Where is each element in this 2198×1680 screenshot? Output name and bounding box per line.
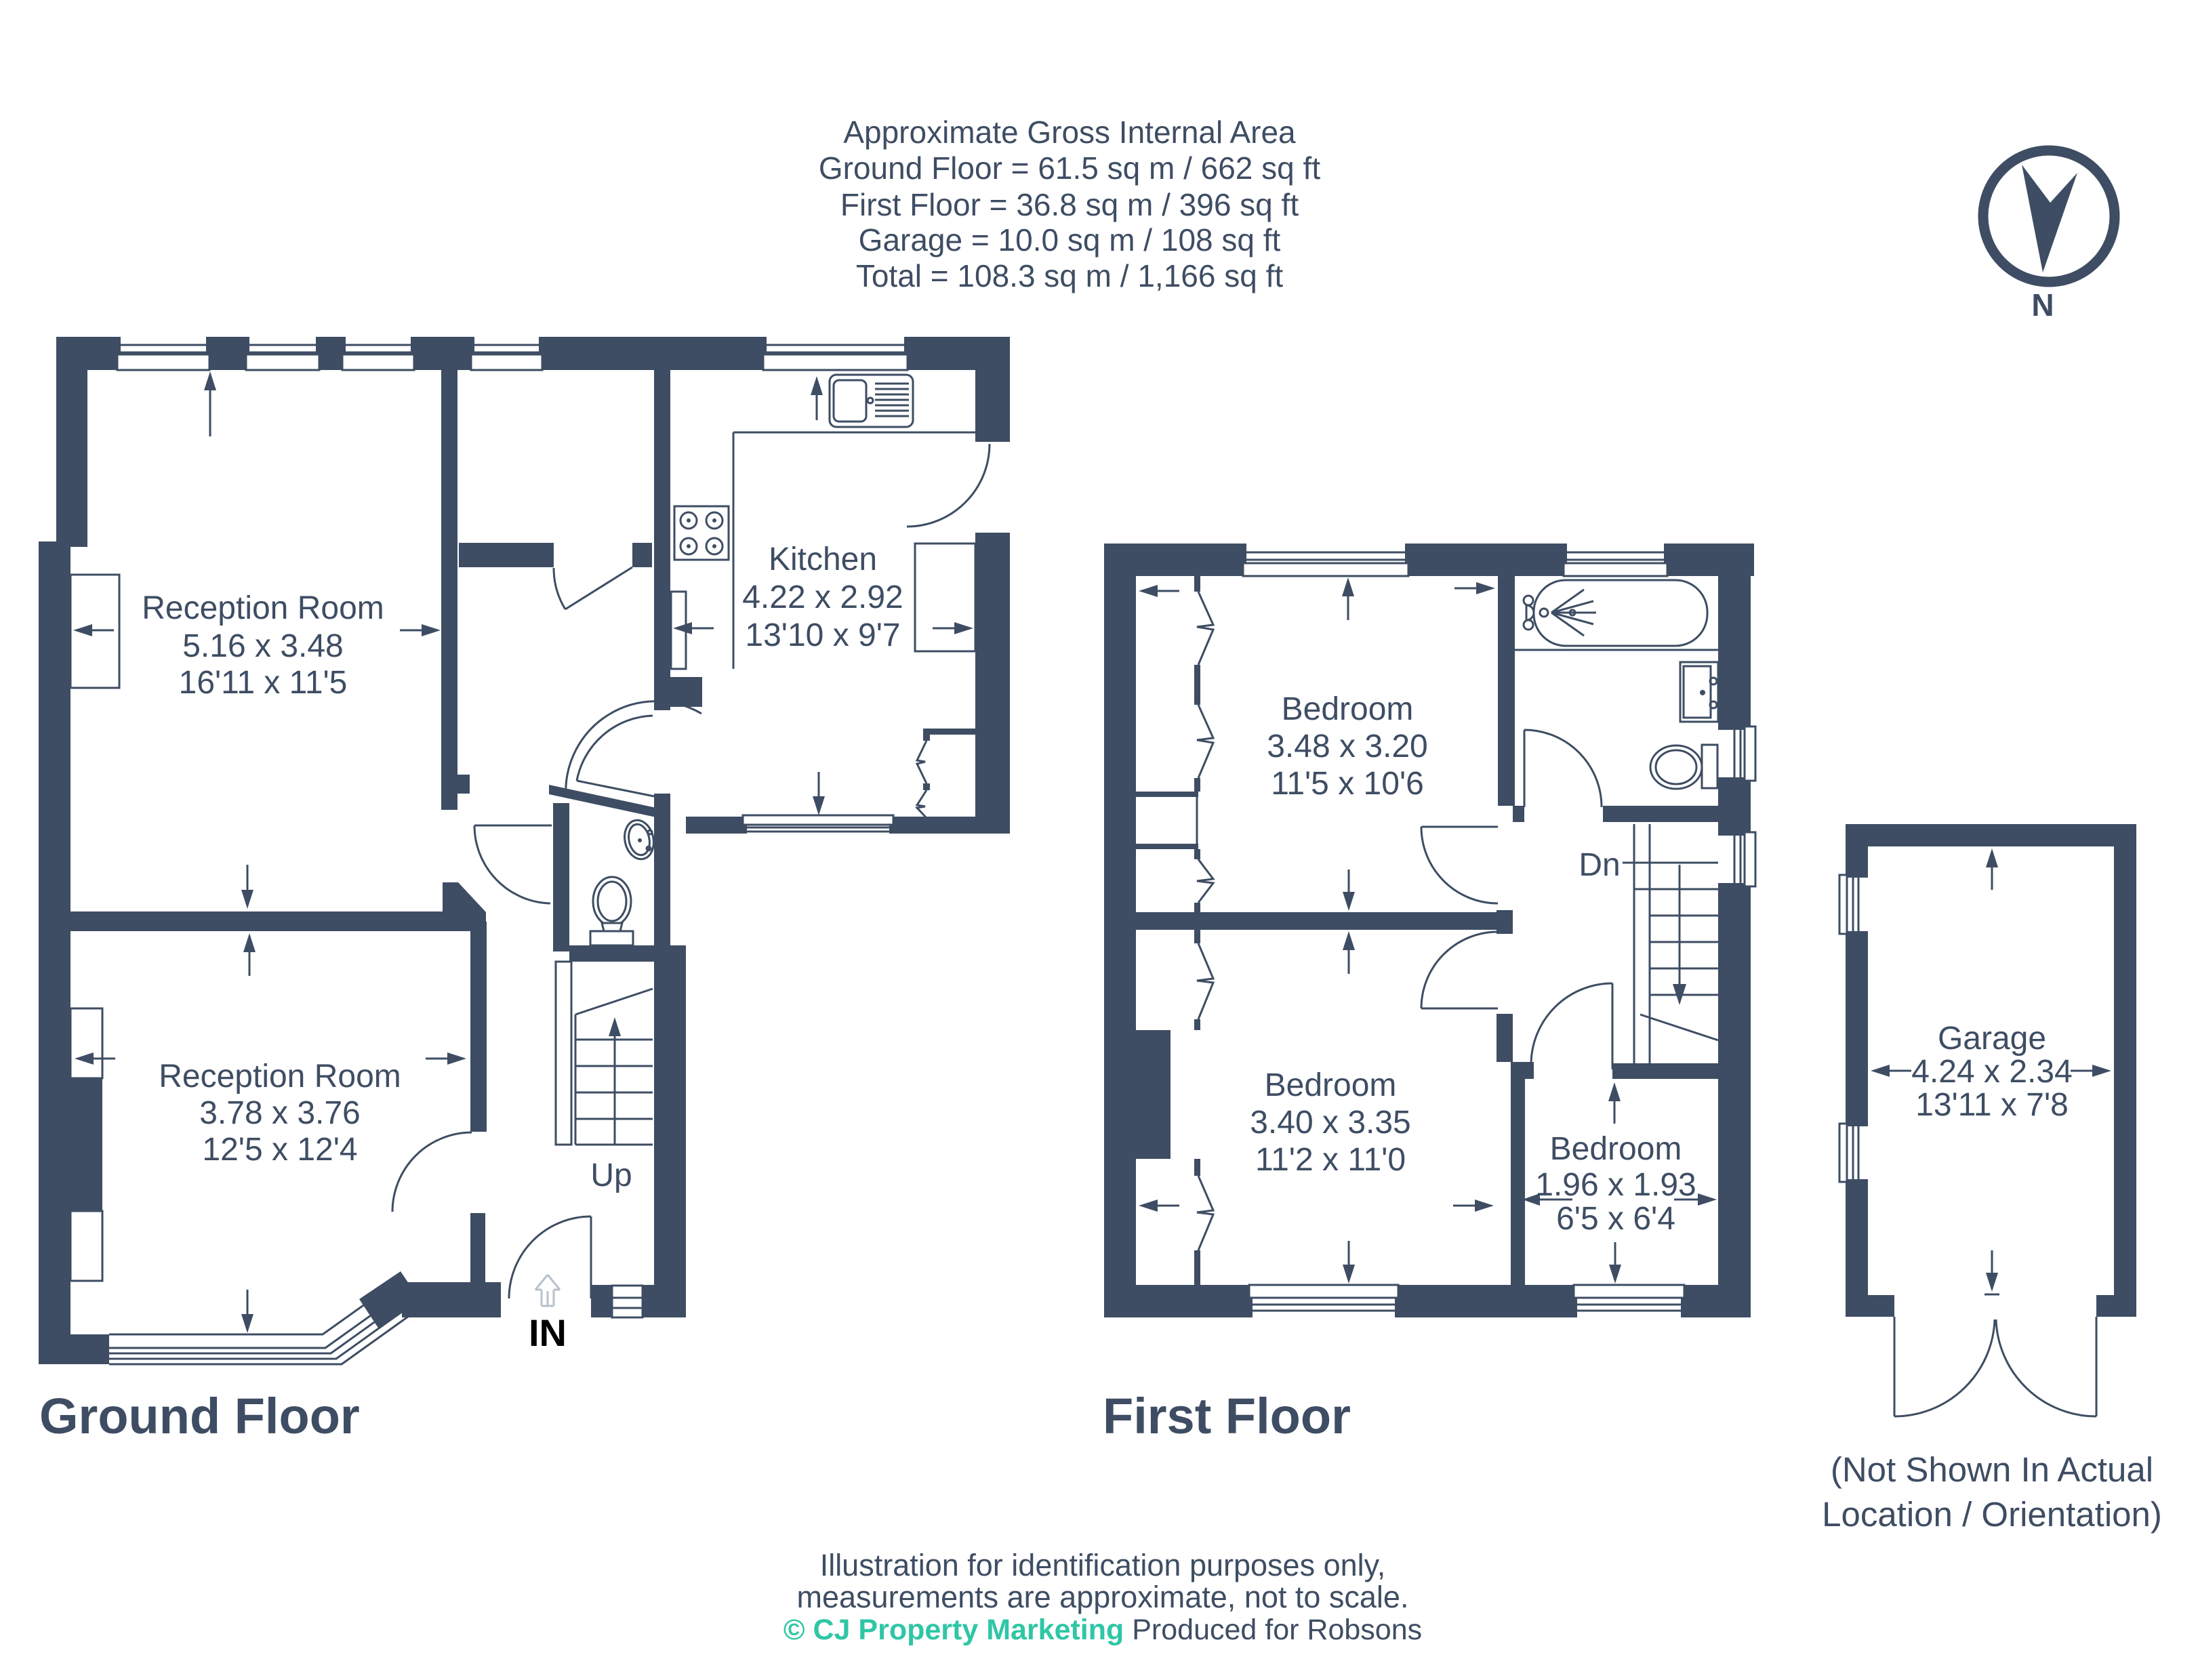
svg-text:1.96 x 1.93: 1.96 x 1.93 [1535,1167,1696,1203]
svg-text:11'5 x 10'6: 11'5 x 10'6 [1271,766,1424,802]
svg-text:Kitchen: Kitchen [769,541,877,577]
svg-text:3.40 x 3.35: 3.40 x 3.35 [1250,1105,1411,1141]
svg-text:N: N [2031,287,2054,323]
svg-text:6'5 x 6'4: 6'5 x 6'4 [1556,1201,1675,1237]
svg-text:3.78 x 3.76: 3.78 x 3.76 [199,1095,361,1131]
svg-text:16'11 x 11'5: 16'11 x 11'5 [179,665,348,701]
svg-text:13'10 x 9'7: 13'10 x 9'7 [745,617,900,653]
svg-text:First Floor: First Floor [1103,1388,1351,1444]
svg-text:Bedroom: Bedroom [1550,1131,1682,1167]
svg-text:4.22 x 2.92: 4.22 x 2.92 [742,579,903,615]
svg-text:Garage = 10.0 sq m / 108 sq ft: Garage = 10.0 sq m / 108 sq ft [859,222,1281,258]
svg-text:Up: Up [590,1157,632,1193]
svg-text:Location / Orientation): Location / Orientation) [1822,1495,2162,1534]
svg-text:Approximate Gross Internal Are: Approximate Gross Internal Area [843,115,1296,150]
svg-text:Ground Floor: Ground Floor [39,1388,360,1444]
svg-text:First Floor = 36.8 sq m / 396: First Floor = 36.8 sq m / 396 sq ft [840,187,1299,222]
svg-text:13'11 x 7'8: 13'11 x 7'8 [1915,1087,2069,1123]
svg-text:Bedroom: Bedroom [1265,1067,1397,1103]
svg-text:Reception Room: Reception Room [159,1059,401,1094]
svg-text:Garage: Garage [1938,1021,2046,1057]
svg-text:12'5 x 12'4: 12'5 x 12'4 [202,1132,357,1168]
svg-text:© CJ Property Marketing Produ: © CJ Property Marketing Produced for Rob… [783,1614,1422,1646]
svg-text:Dn: Dn [1579,847,1620,883]
svg-text:Illustration for identificatio: Illustration for identification purposes… [820,1548,1386,1582]
svg-text:measurements are approximate,: measurements are approximate, not to sca… [797,1580,1409,1614]
svg-text:5.16 x 3.48: 5.16 x 3.48 [182,628,344,664]
svg-text:Total = 108.3 sq m / 1,166 sq: Total = 108.3 sq m / 1,166 sq ft [856,258,1284,293]
svg-text:Bedroom: Bedroom [1282,691,1414,727]
svg-text:4.24 x 2.34: 4.24 x 2.34 [1911,1054,2073,1090]
svg-text:Reception Room: Reception Room [142,590,384,626]
svg-text:IN: IN [529,1311,567,1354]
svg-text:(Not Shown In Actual: (Not Shown In Actual [1831,1450,2153,1489]
svg-text:Ground Floor = 61.5 sq m / 662: Ground Floor = 61.5 sq m / 662 sq ft [819,150,1320,186]
svg-text:3.48 x 3.20: 3.48 x 3.20 [1267,729,1428,764]
svg-text:11'2 x 11'0: 11'2 x 11'0 [1255,1142,1406,1178]
